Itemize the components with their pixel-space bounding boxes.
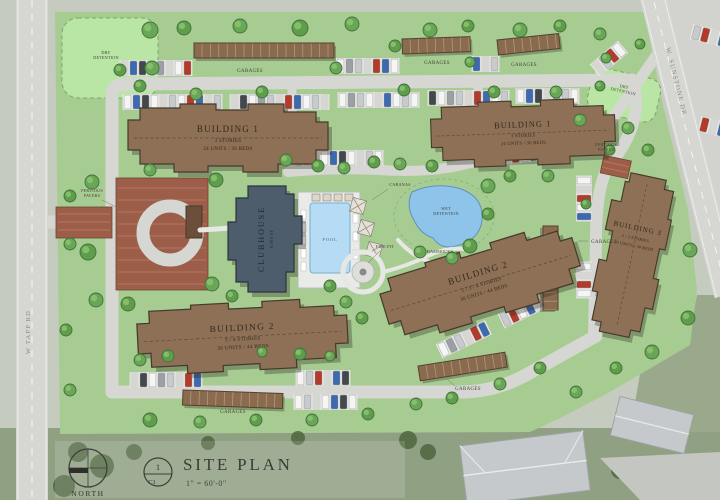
- parked-car: [130, 61, 137, 75]
- parked-car: [355, 59, 362, 73]
- pool-label: POOL: [322, 237, 337, 242]
- sheet-number: 1: [156, 463, 160, 472]
- parked-car: [333, 371, 340, 385]
- tree: [209, 173, 223, 187]
- parked-car: [342, 371, 349, 385]
- tree: [114, 64, 126, 76]
- building-1-west: BUILDING 1 3 STORIES 24 UNITS / 36 BEDS: [128, 104, 332, 177]
- tree: [292, 20, 308, 36]
- parked-car: [151, 95, 158, 109]
- west-tapp-road: W TAPP RD: [16, 0, 48, 500]
- north-label: NORTH: [71, 489, 104, 498]
- garage-building: [182, 390, 285, 412]
- tree: [190, 88, 202, 100]
- tree: [64, 238, 76, 250]
- cabanas-label: CABANAS: [389, 182, 411, 187]
- tree: [60, 324, 72, 336]
- sheet-ref: C1: [148, 479, 156, 486]
- tree: [256, 86, 268, 98]
- tree: [226, 290, 238, 302]
- pervious-pavers-label-west: PERVIOUSPAVERS: [81, 188, 103, 198]
- parked-car: [349, 395, 356, 409]
- parking-row: [336, 58, 399, 74]
- parked-car: [167, 373, 174, 387]
- parked-car: [340, 395, 347, 409]
- tree: [550, 86, 562, 98]
- tree: [389, 40, 401, 52]
- parking-row: [294, 394, 357, 410]
- parked-car: [357, 93, 364, 107]
- tree: [488, 86, 500, 98]
- parked-car: [315, 371, 322, 385]
- garages-label-5: GARAGES: [455, 387, 481, 392]
- parked-car: [339, 93, 346, 107]
- tree: [494, 378, 506, 390]
- tree: [542, 170, 554, 182]
- site-plan-drawing: BUILDING 1 3 STORIES 24 UNITS / 36 BEDS …: [0, 0, 720, 500]
- tree: [250, 414, 262, 426]
- north-arrow: [69, 449, 107, 487]
- parking-row: [130, 372, 202, 388]
- tree: [504, 170, 516, 182]
- parked-car: [366, 93, 373, 107]
- parked-car: [348, 151, 355, 165]
- garages-label-2: GARAGES: [424, 61, 450, 66]
- parked-car: [295, 395, 302, 409]
- tree: [513, 23, 527, 37]
- tree: [340, 296, 352, 308]
- parked-car: [393, 93, 400, 107]
- tree: [338, 162, 350, 174]
- tree: [143, 413, 157, 427]
- parking-row: [576, 176, 592, 221]
- parked-car: [142, 95, 149, 109]
- tree: [142, 22, 158, 38]
- drawing-title: SITE PLAN: [183, 455, 293, 474]
- parked-car: [373, 59, 380, 73]
- pervious-pavers-label-east: PERVIOUSPAVERS: [595, 142, 617, 152]
- parked-car: [149, 373, 156, 387]
- title-block: NORTH 1 C1 SITE PLAN 1" = 60'-0": [55, 441, 405, 498]
- tree: [312, 160, 324, 172]
- parked-car: [382, 59, 389, 73]
- parked-car: [169, 95, 176, 109]
- tree: [601, 53, 611, 63]
- parked-car: [158, 373, 165, 387]
- tree: [306, 414, 318, 426]
- tree: [194, 416, 206, 428]
- garage-building: [194, 43, 336, 61]
- tree: [64, 384, 76, 396]
- tree: [325, 351, 335, 361]
- parked-car: [240, 95, 247, 109]
- tree: [121, 297, 135, 311]
- parked-car: [391, 59, 398, 73]
- tree: [330, 62, 342, 74]
- garages-label-1: GARAGES: [237, 69, 263, 74]
- tree: [280, 154, 292, 166]
- hammocks-label: HAMMOCKS: [427, 249, 454, 254]
- tree: [426, 160, 438, 172]
- entry-paver-crossing: [56, 207, 112, 238]
- tree: [482, 208, 494, 220]
- garages-label-3: GARAGES: [511, 63, 537, 68]
- tree: [423, 23, 437, 37]
- tree: [642, 144, 654, 156]
- parked-car: [577, 177, 591, 184]
- parked-car: [312, 95, 319, 109]
- tree: [345, 17, 359, 31]
- tree: [595, 81, 605, 91]
- tree: [89, 293, 103, 307]
- tree: [414, 246, 426, 258]
- tree: [410, 398, 422, 410]
- tree: [162, 350, 174, 362]
- tree: [134, 354, 146, 366]
- tree: [324, 280, 336, 292]
- fire-pit-label: FIRE PIT: [376, 244, 394, 249]
- tree: [134, 80, 146, 92]
- parked-car: [185, 373, 192, 387]
- building-1-west-units: 24 UNITS / 36 BEDS: [203, 147, 252, 152]
- tree: [362, 408, 374, 420]
- parked-car: [331, 395, 338, 409]
- tree: [581, 199, 591, 209]
- parked-car: [526, 89, 533, 103]
- building-1-west-name: BUILDING 1: [197, 124, 259, 134]
- parked-car: [577, 281, 591, 288]
- tree: [481, 179, 495, 193]
- tree: [356, 312, 368, 324]
- parked-car: [285, 95, 292, 109]
- parked-car: [306, 371, 313, 385]
- parking-row: [472, 56, 499, 72]
- parked-car: [429, 91, 436, 105]
- tree: [145, 61, 159, 75]
- tree: [368, 156, 380, 168]
- plaza-kiosk-building: [186, 206, 202, 238]
- garages-label-4: GARAGES: [220, 410, 246, 415]
- pervious-paver-plaza: [116, 178, 208, 290]
- tree: [635, 39, 645, 49]
- parked-car: [491, 57, 498, 71]
- parked-car: [184, 61, 191, 75]
- parked-car: [303, 95, 310, 109]
- tree: [465, 57, 475, 67]
- tree: [594, 28, 606, 40]
- parked-car: [304, 395, 311, 409]
- tree: [85, 175, 99, 189]
- tree: [80, 244, 96, 260]
- parked-car: [577, 290, 591, 297]
- clubhouse-name: CLUBHOUSE: [257, 206, 266, 272]
- parked-car: [346, 59, 353, 73]
- parked-car: [124, 95, 131, 109]
- aerial-shrub: [420, 444, 436, 460]
- parked-car: [133, 95, 140, 109]
- tree: [177, 21, 191, 35]
- fire-pit: [360, 269, 367, 276]
- street-label-west: W TAPP RD: [25, 310, 32, 354]
- parked-car: [438, 91, 445, 105]
- tree: [681, 311, 695, 325]
- tree: [144, 164, 156, 176]
- tree: [398, 84, 410, 96]
- garage-building: [402, 37, 473, 57]
- tree: [645, 345, 659, 359]
- tree: [233, 19, 247, 33]
- tree: [574, 114, 586, 126]
- tree: [294, 348, 306, 360]
- building-1-west-stories: 3 STORIES: [215, 139, 242, 144]
- tree: [534, 362, 546, 374]
- building-1-east-stories: 3 STORIES: [511, 133, 536, 139]
- tree: [463, 239, 477, 253]
- parked-car: [322, 395, 329, 409]
- tree: [570, 386, 582, 398]
- tree: [205, 277, 219, 291]
- tree: [610, 362, 622, 374]
- tree: [462, 20, 474, 32]
- parked-car: [348, 93, 355, 107]
- parked-car: [297, 371, 304, 385]
- parked-car: [140, 373, 147, 387]
- parked-car: [175, 61, 182, 75]
- tree: [446, 392, 458, 404]
- tree: [257, 347, 267, 357]
- garages-label-6: GARAGES: [591, 240, 617, 245]
- parked-car: [411, 93, 418, 107]
- parked-car: [384, 93, 391, 107]
- tree: [394, 158, 406, 170]
- drawing-scale: 1" = 60'-0": [186, 479, 227, 488]
- tree: [554, 20, 566, 32]
- tree: [622, 122, 634, 134]
- parked-car: [294, 95, 301, 109]
- tree: [683, 243, 697, 257]
- parked-car: [447, 91, 454, 105]
- parked-car: [456, 91, 463, 105]
- parked-car: [517, 89, 524, 103]
- parking-row: [296, 370, 350, 386]
- parked-car: [577, 213, 591, 220]
- tree: [64, 190, 76, 202]
